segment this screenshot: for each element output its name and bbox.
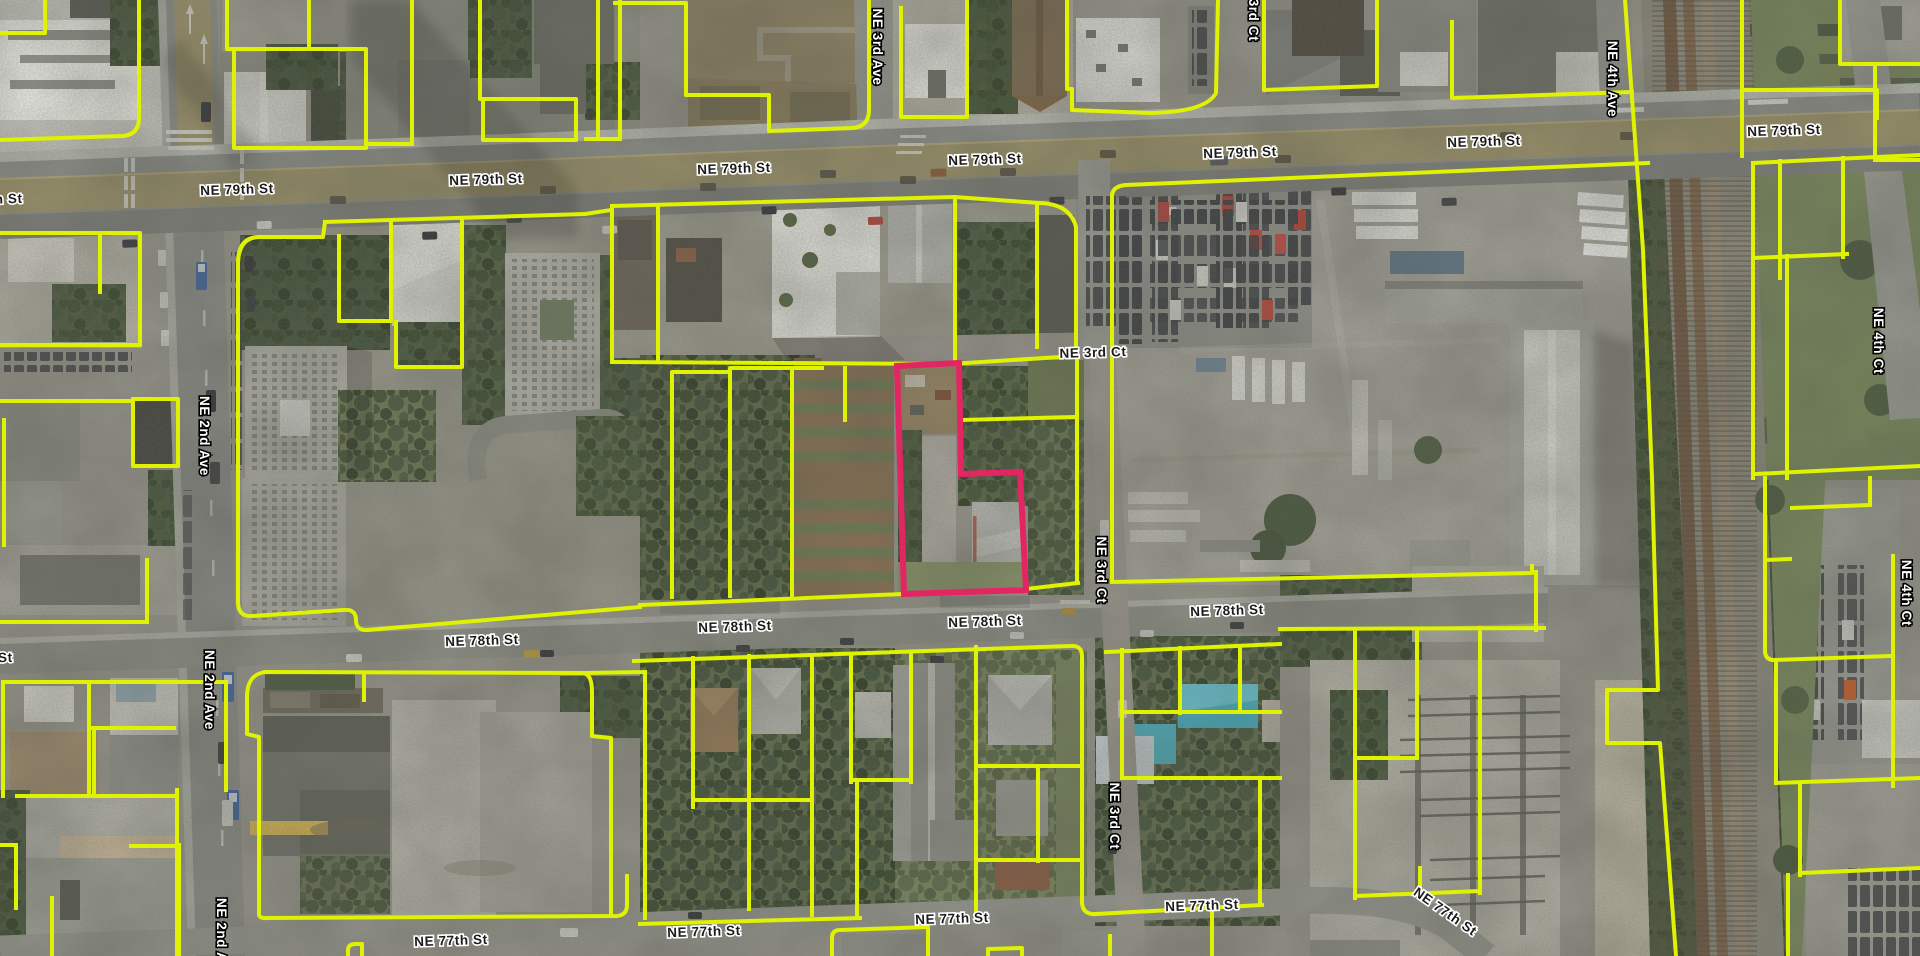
svg-text:NE 2nd Ave: NE 2nd Ave xyxy=(202,650,217,730)
svg-text:NE 4th Ave: NE 4th Ave xyxy=(1605,41,1620,117)
svg-text:NE 78th St: NE 78th St xyxy=(1190,602,1264,619)
svg-text:NE 79th St: NE 79th St xyxy=(697,160,771,177)
svg-text:NE 79th St: NE 79th St xyxy=(1447,133,1521,150)
svg-text:3rd Ct: 3rd Ct xyxy=(1246,0,1261,41)
svg-text:NE 3rd Ct: NE 3rd Ct xyxy=(1059,344,1126,361)
svg-text:NE 3rd Ave: NE 3rd Ave xyxy=(870,8,885,85)
svg-text:NE 79th St: NE 79th St xyxy=(200,181,274,198)
svg-text:NE 77th St: NE 77th St xyxy=(667,923,741,940)
svg-text:NE 4th Ct: NE 4th Ct xyxy=(1871,308,1886,374)
svg-text:NE 78th St: NE 78th St xyxy=(698,618,772,635)
svg-text:NE 79th St: NE 79th St xyxy=(1747,122,1821,139)
svg-text:NE 78th St: NE 78th St xyxy=(445,632,519,649)
svg-text:NE 78th St: NE 78th St xyxy=(948,613,1022,630)
svg-text:NE 79th St: NE 79th St xyxy=(0,191,23,208)
svg-text:NE 79th St: NE 79th St xyxy=(1203,144,1277,161)
svg-text:NE 77th St: NE 77th St xyxy=(414,932,488,949)
svg-text:NE 2nd Ave: NE 2nd Ave xyxy=(197,396,212,476)
svg-text:NE 77th St: NE 77th St xyxy=(915,910,989,927)
svg-text:NE 77th St: NE 77th St xyxy=(1165,897,1239,914)
svg-text:NE 3rd Ct: NE 3rd Ct xyxy=(1107,783,1122,850)
svg-text:NE 79th St: NE 79th St xyxy=(948,151,1022,168)
svg-text:NE 78th St: NE 78th St xyxy=(0,650,13,667)
svg-text:NE 2nd Ave: NE 2nd Ave xyxy=(214,898,229,956)
svg-text:NE 4th Ct: NE 4th Ct xyxy=(1899,560,1914,626)
svg-text:NE 3rd Ct: NE 3rd Ct xyxy=(1094,537,1109,604)
svg-text:NE 79th St: NE 79th St xyxy=(449,171,523,188)
